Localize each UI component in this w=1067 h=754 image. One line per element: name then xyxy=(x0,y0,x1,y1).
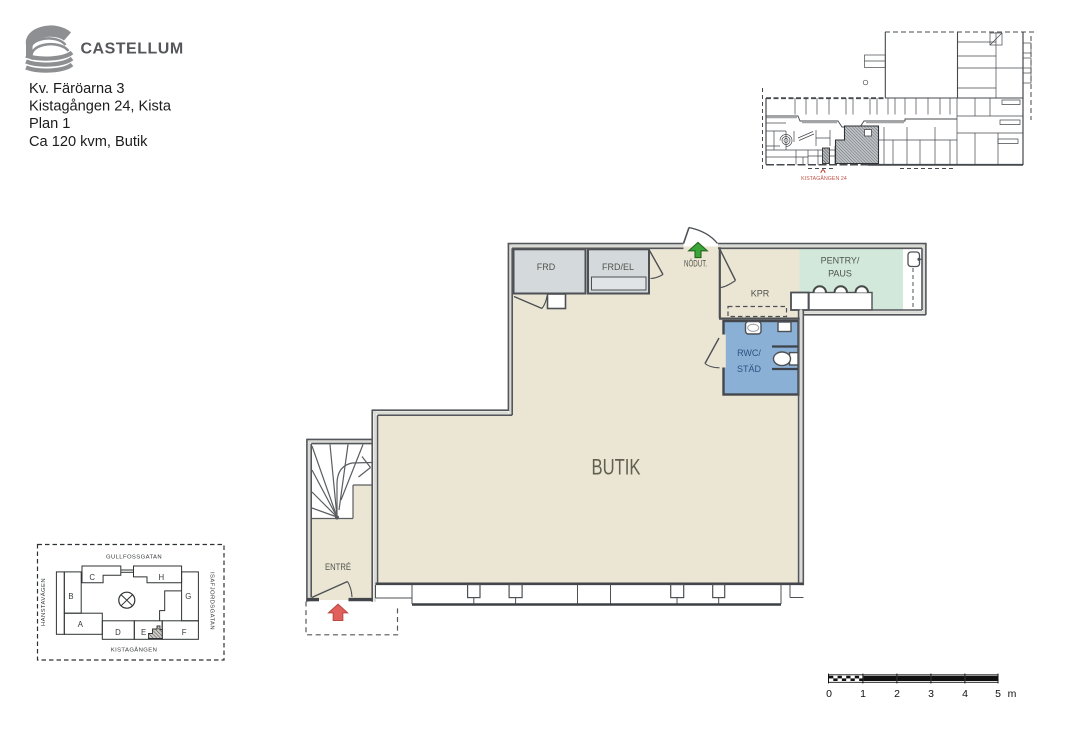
svg-text:0: 0 xyxy=(826,688,832,700)
svg-text:m: m xyxy=(1008,688,1017,700)
svg-text:FRD/EL: FRD/EL xyxy=(602,262,634,272)
svg-text:PENTRY/: PENTRY/ xyxy=(821,256,860,266)
svg-text:ISAFJORDSGATAN: ISAFJORDSGATAN xyxy=(209,572,215,630)
svg-text:Plan 1: Plan 1 xyxy=(29,116,70,132)
svg-text:STÄD: STÄD xyxy=(737,364,762,374)
svg-text:C: C xyxy=(89,573,95,582)
svg-text:PAUS: PAUS xyxy=(828,269,852,279)
svg-text:CASTELLUM: CASTELLUM xyxy=(81,41,184,58)
svg-text:E: E xyxy=(141,628,146,637)
svg-text:H: H xyxy=(158,573,164,582)
svg-text:GULLFOSSGATAN: GULLFOSSGATAN xyxy=(106,555,162,561)
svg-text:B: B xyxy=(68,592,73,601)
svg-text:5: 5 xyxy=(995,688,1001,700)
svg-text:KISTAGÅNGEN: KISTAGÅNGEN xyxy=(111,647,158,654)
svg-text:G: G xyxy=(185,592,191,601)
svg-text:D: D xyxy=(115,628,121,637)
svg-text:1: 1 xyxy=(860,688,866,700)
svg-text:KISTAGÅNGEN 24: KISTAGÅNGEN 24 xyxy=(801,175,847,182)
svg-text:3: 3 xyxy=(928,688,934,700)
svg-text:A: A xyxy=(78,620,84,629)
svg-text:FRD: FRD xyxy=(537,262,556,272)
svg-text:Kistagången 24, Kista: Kistagången 24, Kista xyxy=(29,99,172,115)
svg-text:ENTRÉ: ENTRÉ xyxy=(325,562,351,572)
svg-text:F: F xyxy=(182,628,187,637)
svg-text:NÖDUT.: NÖDUT. xyxy=(684,259,707,269)
svg-text:RWC/: RWC/ xyxy=(737,348,761,358)
svg-text:Kv. Färöarna 3: Kv. Färöarna 3 xyxy=(29,81,124,97)
svg-text:2: 2 xyxy=(894,688,900,700)
svg-text:Ca 120 kvm, Butik: Ca 120 kvm, Butik xyxy=(29,134,148,150)
svg-text:BUTIK: BUTIK xyxy=(592,455,641,480)
svg-text:4: 4 xyxy=(962,688,968,700)
svg-text:HANSTAVÄGEN: HANSTAVÄGEN xyxy=(40,578,47,626)
svg-text:KPR: KPR xyxy=(751,289,770,299)
